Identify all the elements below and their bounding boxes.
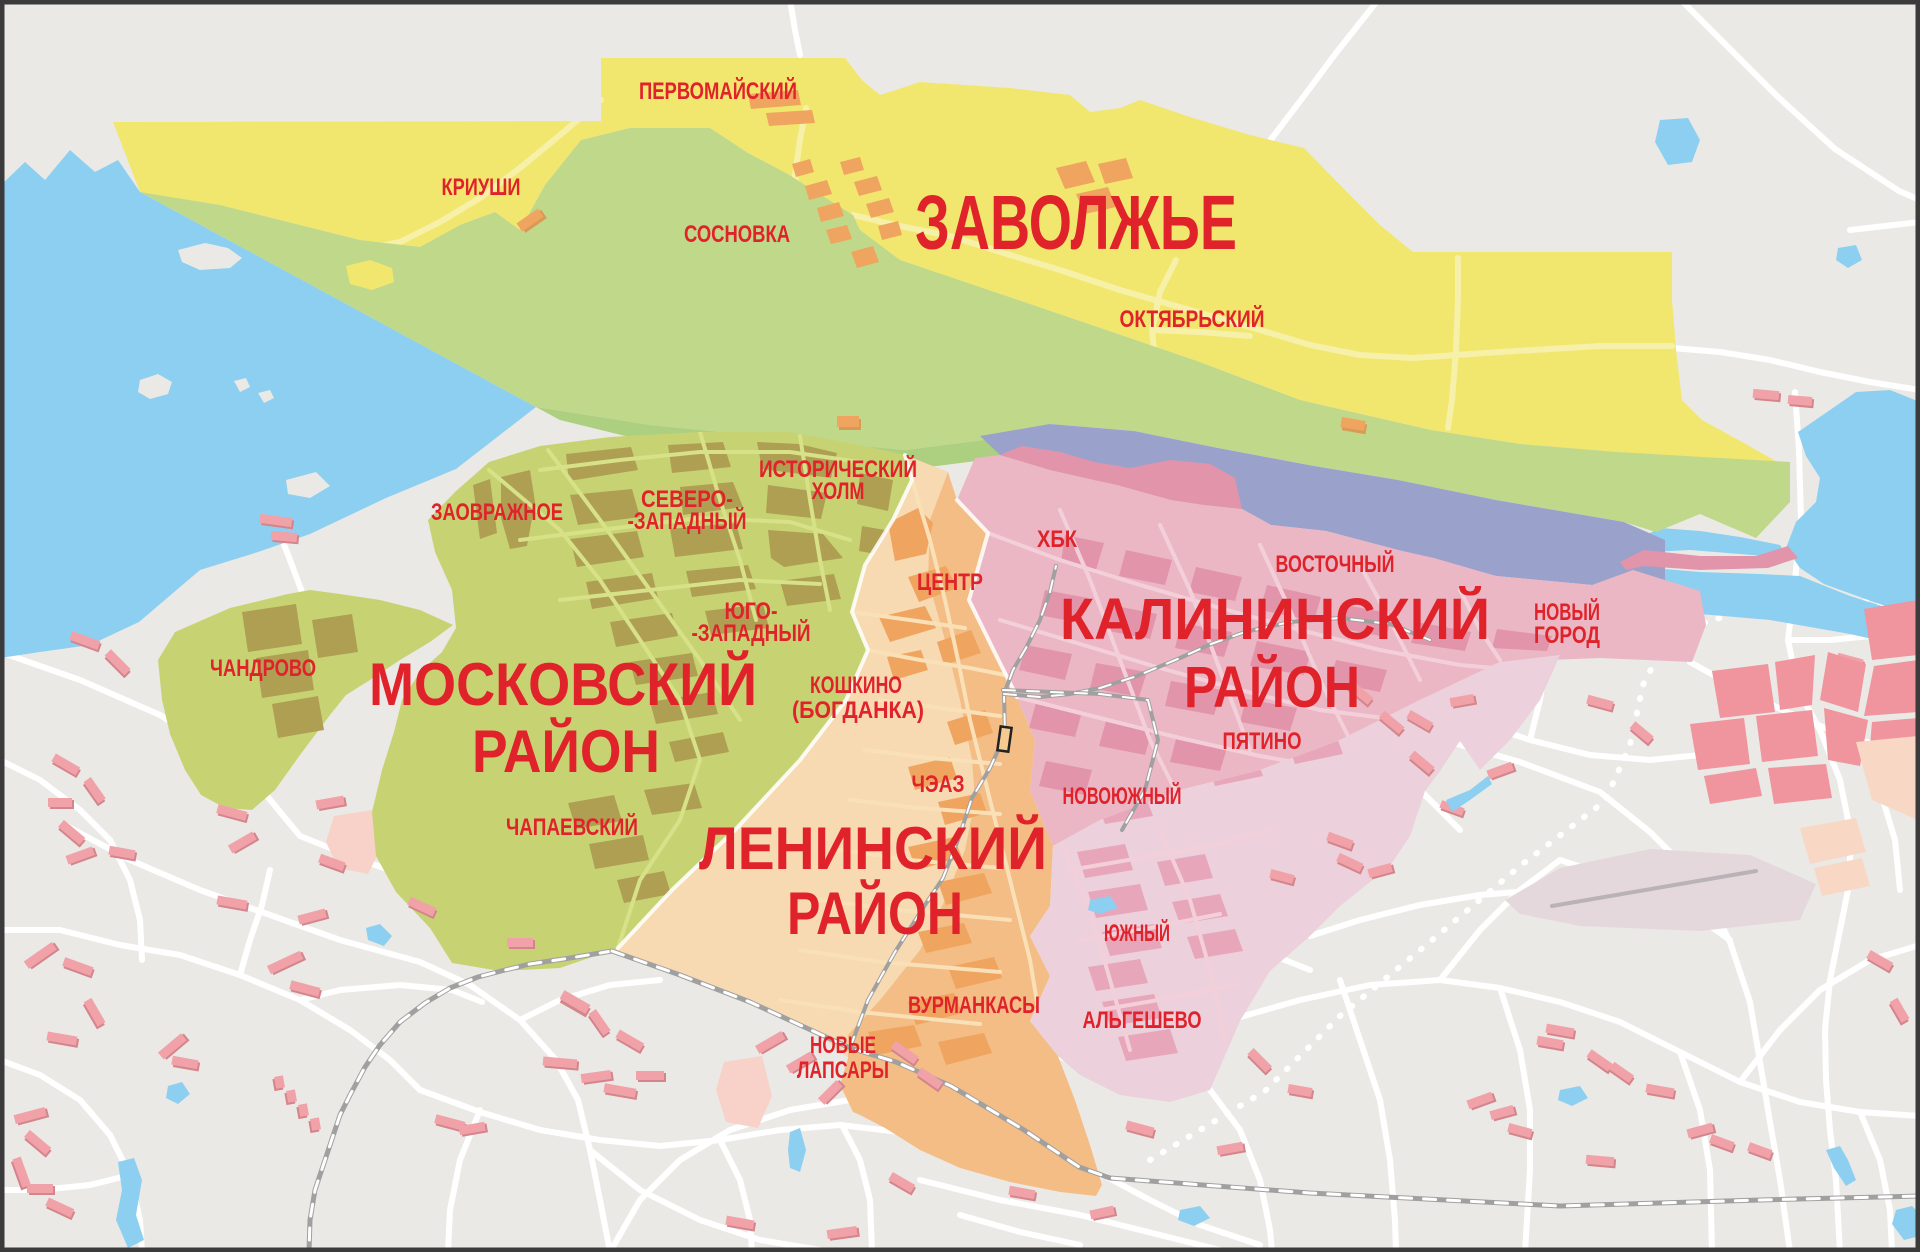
svg-text:ЛЕНИНСКИЙ: ЛЕНИНСКИЙ	[699, 815, 1047, 882]
svg-text:СОСНОВКА: СОСНОВКА	[684, 221, 790, 248]
svg-text:ЦЕНТР: ЦЕНТР	[917, 569, 983, 596]
svg-text:-ЗАПАДНЫЙ: -ЗАПАДНЫЙ	[692, 619, 811, 647]
svg-text:ВОСТОЧНЫЙ: ВОСТОЧНЫЙ	[1276, 550, 1395, 578]
svg-text:АЛЬГЕШЕВО: АЛЬГЕШЕВО	[1083, 1007, 1202, 1034]
svg-text:ХОЛМ: ХОЛМ	[812, 478, 865, 505]
svg-text:НОВЫЕ: НОВЫЕ	[810, 1032, 876, 1059]
svg-text:ЮЖНЫЙ: ЮЖНЫЙ	[1104, 919, 1170, 947]
svg-text:ЗАВОЛЖЬЕ: ЗАВОЛЖЬЕ	[915, 180, 1237, 266]
svg-text:ПЕРВОМАЙСКИЙ: ПЕРВОМАЙСКИЙ	[639, 77, 797, 105]
svg-text:(БОГДАНКА): (БОГДАНКА)	[792, 697, 924, 724]
svg-text:КОШКИНО: КОШКИНО	[810, 672, 902, 699]
svg-text:РАЙОН: РАЙОН	[472, 718, 660, 785]
svg-text:КРИУШИ: КРИУШИ	[442, 174, 521, 201]
svg-text:ЛАПСАРЫ: ЛАПСАРЫ	[797, 1057, 889, 1084]
svg-text:МОСКОВСКИЙ: МОСКОВСКИЙ	[369, 651, 757, 718]
svg-text:РАЙОН: РАЙОН	[787, 880, 963, 947]
svg-text:РАЙОН: РАЙОН	[1184, 655, 1360, 720]
svg-text:ЧЭАЗ: ЧЭАЗ	[912, 771, 965, 798]
svg-text:ЗАОВРАЖНОЕ: ЗАОВРАЖНОЕ	[431, 499, 563, 526]
svg-text:НОВОЮЖНЫЙ: НОВОЮЖНЫЙ	[1063, 782, 1182, 810]
svg-text:ЧАНДРОВО: ЧАНДРОВО	[210, 655, 316, 682]
svg-text:ПЯТИНО: ПЯТИНО	[1223, 728, 1302, 755]
svg-text:ХБК: ХБК	[1037, 526, 1077, 553]
svg-text:-ЗАПАДНЫЙ: -ЗАПАДНЫЙ	[628, 507, 747, 535]
svg-text:ЧАПАЕВСКИЙ: ЧАПАЕВСКИЙ	[506, 813, 638, 841]
svg-text:ГОРОД: ГОРОД	[1534, 622, 1600, 649]
svg-text:ОКТЯБРЬСКИЙ: ОКТЯБРЬСКИЙ	[1120, 305, 1265, 333]
svg-text:ВУРМАНКАСЫ: ВУРМАНКАСЫ	[908, 992, 1040, 1019]
svg-text:КАЛИНИНСКИЙ: КАЛИНИНСКИЙ	[1060, 587, 1490, 652]
